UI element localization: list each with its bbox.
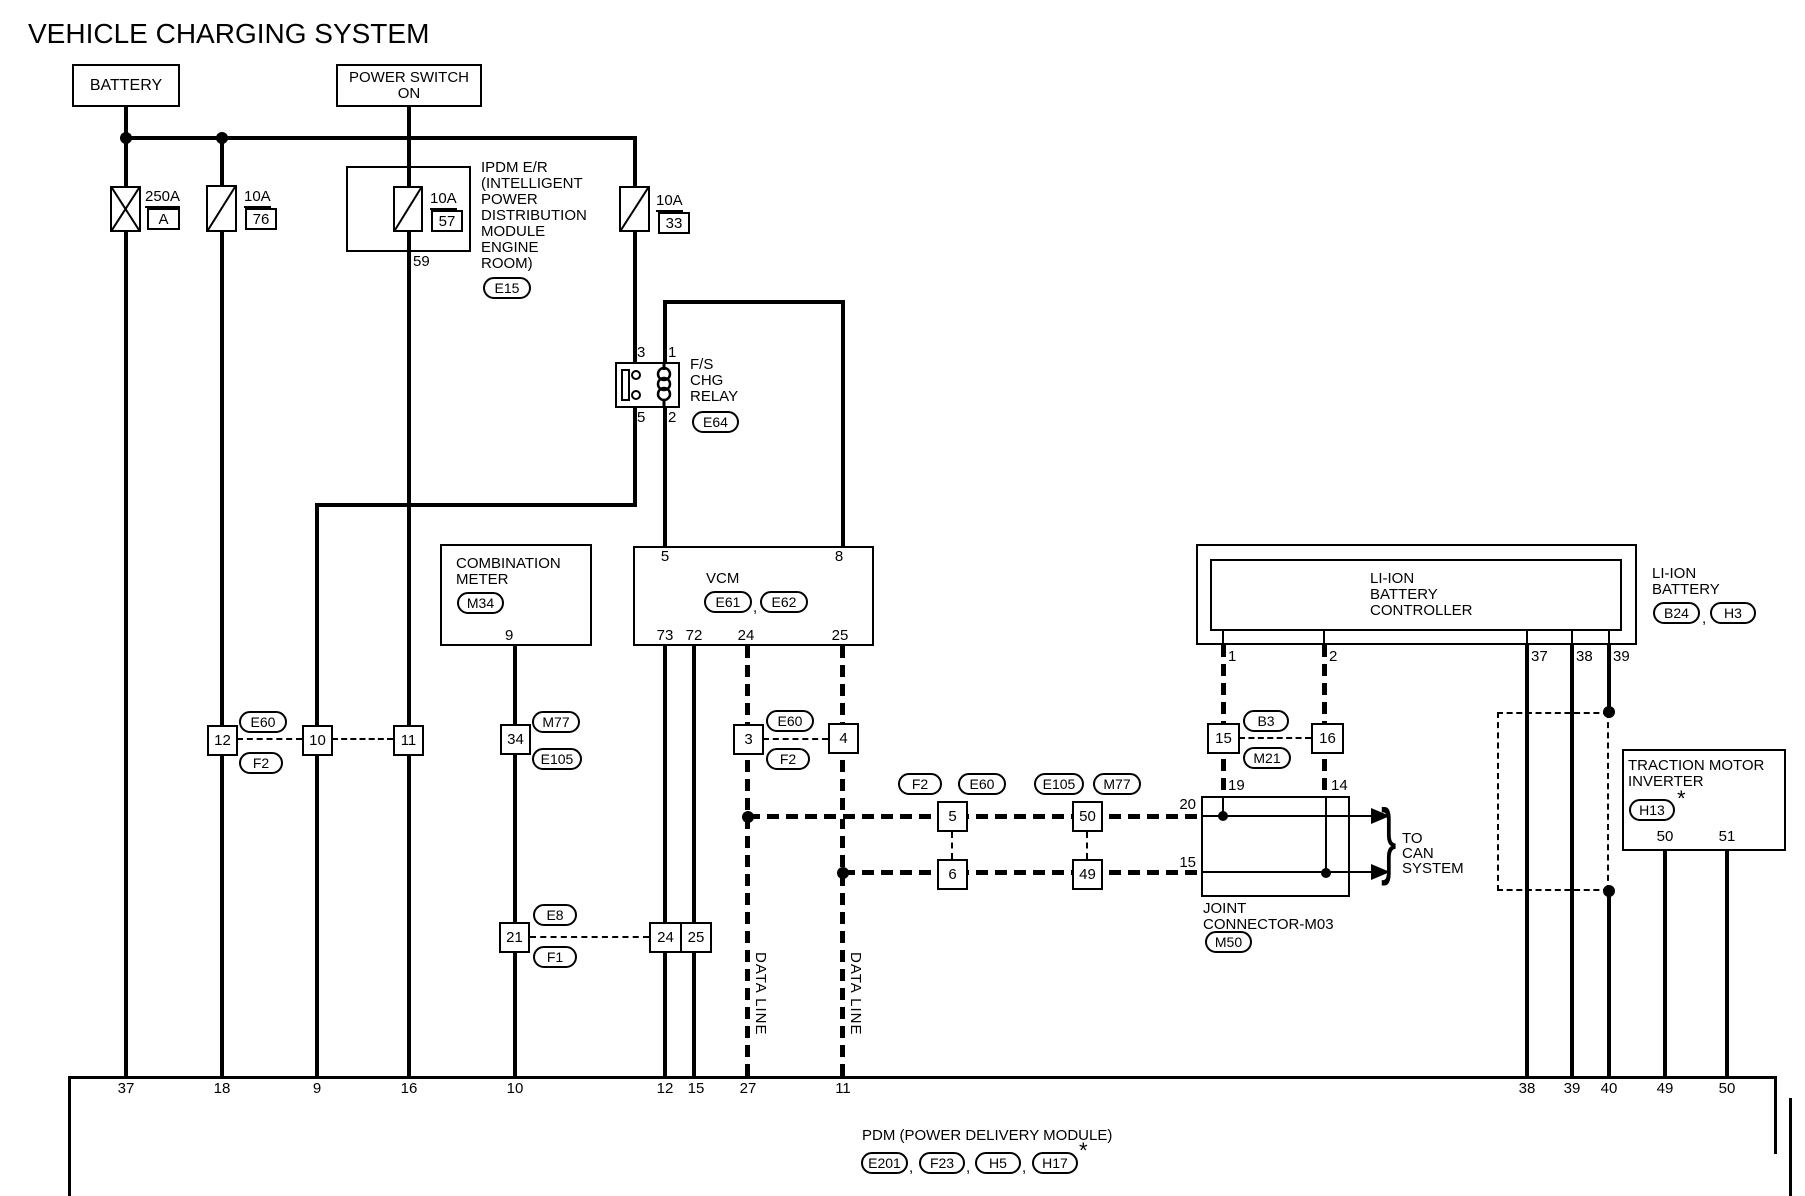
junction-dot <box>742 811 754 823</box>
connector-oval-e15: E15 <box>483 277 531 299</box>
fuse-id: 33 <box>658 212 690 234</box>
pdm-pin-50: 50 <box>1712 1081 1742 1097</box>
pdm-pin-12: 12 <box>650 1081 680 1097</box>
asterisk: * <box>1079 1143 1088 1159</box>
vcm-pin-8: 8 <box>829 549 849 565</box>
connector-oval-f1: F1 <box>533 946 577 968</box>
fuse-id-text: 76 <box>253 211 270 228</box>
pdm-top-line <box>68 1076 1777 1079</box>
can-brace: } <box>1381 797 1396 881</box>
fuse-id-text: 33 <box>666 215 683 232</box>
connector-oval-e61: E61 <box>704 591 752 613</box>
connector-link <box>1239 737 1311 739</box>
wire-fuse76-up <box>220 138 224 185</box>
connector-link <box>530 936 649 938</box>
controller-pin-stub <box>1222 631 1224 645</box>
controller-pin-1: 1 <box>1228 649 1236 665</box>
relay-pin-2: 2 <box>668 410 676 426</box>
pdm-pin-49: 49 <box>1650 1081 1680 1097</box>
pdm-pin-38: 38 <box>1512 1081 1542 1097</box>
vcm-pin-73: 73 <box>655 628 675 644</box>
pin-box-49: 49 <box>1072 859 1103 890</box>
meter-pin-9: 9 <box>505 628 513 644</box>
wire-horizontal-505 <box>315 503 637 507</box>
junction-dot <box>1218 811 1228 821</box>
connector-oval-h13: H13 <box>1629 799 1675 821</box>
wire-vcm72-down <box>692 646 696 1078</box>
connector-oval-f2: F2 <box>898 773 942 795</box>
pin-box-15: 15 <box>1207 723 1240 754</box>
controller-pin-39: 39 <box>1613 649 1630 665</box>
meter-label: COMBINATION METER <box>456 556 561 588</box>
wire-battery-to-fuse <box>124 138 128 186</box>
relay-pin-5: 5 <box>637 410 645 426</box>
pin-box-16: 16 <box>1311 723 1344 754</box>
connector-oval-b24: B24 <box>1653 602 1700 624</box>
junction-dot <box>120 132 132 144</box>
pdm-right-edge <box>1774 1076 1777 1154</box>
wire-vcm-pin8 <box>841 300 845 546</box>
connector-oval-f2: F2 <box>239 752 283 774</box>
comma: , <box>1702 611 1706 627</box>
connector-oval-m34: M34 <box>457 592 504 614</box>
relay-symbol-icon <box>615 362 680 408</box>
jc-can2-line <box>1201 871 1372 873</box>
wire-controller39-lower <box>1607 891 1611 1078</box>
vcm-pin-24: 24 <box>736 628 756 644</box>
jc-pin-19: 19 <box>1228 778 1245 794</box>
wire-ipdm-down <box>407 232 411 1078</box>
pin-box-10: 10 <box>302 725 333 756</box>
fuse-rating: 250A <box>145 188 180 208</box>
junction-dot <box>837 867 849 879</box>
wire-fuse33-to-relay <box>633 232 637 362</box>
pin-box-6: 6 <box>937 859 968 890</box>
connector-oval-m21: M21 <box>1243 747 1291 769</box>
relay-pin-1: 1 <box>668 345 676 361</box>
controller-pin-37: 37 <box>1531 649 1548 665</box>
pdm-pin-9: 9 <box>302 1081 332 1097</box>
relay-pin-3: 3 <box>637 345 645 361</box>
junction-dot <box>1321 868 1331 878</box>
asterisk: * <box>1677 791 1686 807</box>
connector-oval-m77: M77 <box>532 711 580 733</box>
ipdm-pin-59: 59 <box>413 254 430 270</box>
pdm-label: PDM (POWER DELIVERY MODULE) <box>862 1128 1112 1144</box>
comma: , <box>966 1160 970 1176</box>
junction-dot <box>1603 706 1615 718</box>
fuse-57-icon <box>393 186 423 232</box>
can-wire-vcm24-down <box>745 646 750 1078</box>
pin-box-4: 4 <box>828 723 859 754</box>
pdm-pin-39: 39 <box>1557 1081 1587 1097</box>
fuse-33-icon <box>619 186 650 232</box>
connector-oval-h5: H5 <box>975 1152 1021 1174</box>
connector-oval-m77: M77 <box>1093 773 1141 795</box>
pdm-pin-27: 27 <box>733 1081 763 1097</box>
pdm-left-edge <box>68 1076 71 1196</box>
connector-oval-e60: E60 <box>958 773 1006 795</box>
connector-oval-b3: B3 <box>1243 710 1289 732</box>
jc-pin-14: 14 <box>1331 778 1348 794</box>
pin-box-34: 34 <box>500 724 531 755</box>
fuse-id-text: A <box>158 211 168 228</box>
jc-pin-20: 20 <box>1166 797 1196 813</box>
comma: , <box>753 600 757 616</box>
fusible-link-250a-icon <box>110 186 141 232</box>
pdm-pin-10: 10 <box>500 1081 530 1097</box>
fuse-rating: 10A <box>430 190 457 210</box>
vcm-pin-5: 5 <box>655 549 675 565</box>
connector-oval-f23: F23 <box>919 1152 965 1174</box>
wire-inverter50-down <box>1663 851 1667 1078</box>
controller-pin-stub <box>1608 631 1610 645</box>
pdm-pin-11: 11 <box>828 1081 858 1097</box>
connector-link <box>332 738 393 740</box>
fuse-id: A <box>147 208 180 230</box>
battery-label: BATTERY <box>72 64 180 107</box>
junction-dot <box>216 132 228 144</box>
pin-box-50: 50 <box>1072 801 1103 832</box>
fuse-id-text: 57 <box>439 213 456 230</box>
jc-pin14-stub <box>1325 796 1327 873</box>
vcm-pin-72: 72 <box>684 628 704 644</box>
controller-pin-38: 38 <box>1576 649 1593 665</box>
page-title: VEHICLE CHARGING SYSTEM <box>28 18 429 50</box>
wire-inverter51-down <box>1725 851 1729 1078</box>
controller-pin-stub <box>1571 631 1573 645</box>
wire-controller39-upper <box>1607 645 1611 712</box>
comma: , <box>1022 1160 1026 1176</box>
joint-connector-label: JOINT CONNECTOR-M03 <box>1203 901 1334 933</box>
jc-pin-15: 15 <box>1166 855 1196 871</box>
inverter-pin-51: 51 <box>1717 829 1737 845</box>
connector-oval-e64: E64 <box>692 411 739 433</box>
junction-dot <box>1603 885 1615 897</box>
controller-pin-2: 2 <box>1329 649 1337 665</box>
comma: , <box>909 1160 913 1176</box>
data-line-label: DATA LINE <box>752 952 769 1052</box>
wire-bus <box>124 136 637 140</box>
shield-dashed-box <box>1497 712 1609 891</box>
inverter-label: TRACTION MOTOR INVERTER <box>1628 758 1764 790</box>
fuse-rating: 10A <box>244 188 271 208</box>
connector-link <box>763 738 828 740</box>
can-wire-h2 <box>843 870 1201 875</box>
vcm-label: VCM <box>706 571 739 587</box>
li-ion-battery-label: LI-ION BATTERY <box>1652 566 1720 598</box>
to-can-system-label: TO CAN SYSTEM <box>1402 831 1464 876</box>
ipdm-label: IPDM E/R (INTELLIGENT POWER DISTRIBUTION… <box>481 160 587 272</box>
pin-box-3: 3 <box>733 724 764 755</box>
pdm-pin-18: 18 <box>207 1081 237 1097</box>
fuse-id: 57 <box>431 210 463 232</box>
data-line-label: DATA LINE <box>847 952 864 1052</box>
connector-oval-e60: E60 <box>766 710 814 732</box>
connector-oval-e8: E8 <box>533 904 577 926</box>
wire-relay1-up <box>663 300 667 362</box>
fuse-id: 76 <box>245 208 277 230</box>
can-wire-controller1-down <box>1221 645 1226 796</box>
wiring-diagram: 250A A 10A 76 10A 57 10A 33 12 10 11 34 … <box>0 0 1805 1196</box>
wire-vcm73-down <box>663 646 667 1078</box>
wire-fuse76-down <box>220 232 224 1078</box>
pin-box-25: 25 <box>680 922 712 953</box>
pdm-pin-16: 16 <box>394 1081 424 1097</box>
controller-pin-stub <box>1526 631 1528 645</box>
wire-x317-down <box>315 503 319 1078</box>
pdm-pin-40: 40 <box>1594 1081 1624 1097</box>
connector-oval-h17: H17 <box>1032 1152 1078 1174</box>
can-wire-h1 <box>748 814 1201 819</box>
wire-horizontal-302 <box>663 300 845 304</box>
wire-fuse33-up <box>633 138 637 186</box>
pin-box-12: 12 <box>207 725 238 756</box>
connector-oval-h3: H3 <box>1710 602 1756 624</box>
pdm-pin-15: 15 <box>681 1081 711 1097</box>
connector-oval-e105: E105 <box>1034 773 1084 795</box>
inverter-pin-50: 50 <box>1655 829 1675 845</box>
pin-box-24: 24 <box>649 922 682 953</box>
connector-oval-e105: E105 <box>532 748 582 770</box>
relay-label: F/S CHG RELAY <box>690 357 738 405</box>
power-switch-label: POWER SWITCH ON <box>336 64 482 107</box>
can-wire-vcm25-down <box>840 646 845 1078</box>
pin-box-5: 5 <box>937 801 968 832</box>
connector-oval-e62: E62 <box>760 591 808 613</box>
connector-link <box>237 738 302 740</box>
controller-label: LI-ION BATTERY CONTROLLER <box>1370 571 1473 619</box>
pin-box-21: 21 <box>499 922 530 953</box>
fuse-rating: 10A <box>656 192 683 212</box>
pdm-right-break <box>1789 1098 1792 1196</box>
wire-battery-down <box>124 232 128 1078</box>
can-wire-controller2-down <box>1322 645 1327 796</box>
connector-oval-e60: E60 <box>239 711 287 733</box>
pin-box-11: 11 <box>393 725 424 756</box>
controller-pin-stub <box>1323 631 1325 645</box>
connector-link <box>1086 832 1088 859</box>
connector-oval-e201: E201 <box>861 1152 908 1174</box>
connector-link <box>951 832 953 859</box>
wire-relay2-to-vcm5 <box>663 408 667 546</box>
vcm-pin-25: 25 <box>830 628 850 644</box>
connector-oval-f2: F2 <box>766 748 810 770</box>
pdm-pin-37: 37 <box>111 1081 141 1097</box>
fuse-76-icon <box>206 185 237 232</box>
connector-oval-m50: M50 <box>1205 931 1252 953</box>
wire-meter9-down <box>513 646 517 1078</box>
